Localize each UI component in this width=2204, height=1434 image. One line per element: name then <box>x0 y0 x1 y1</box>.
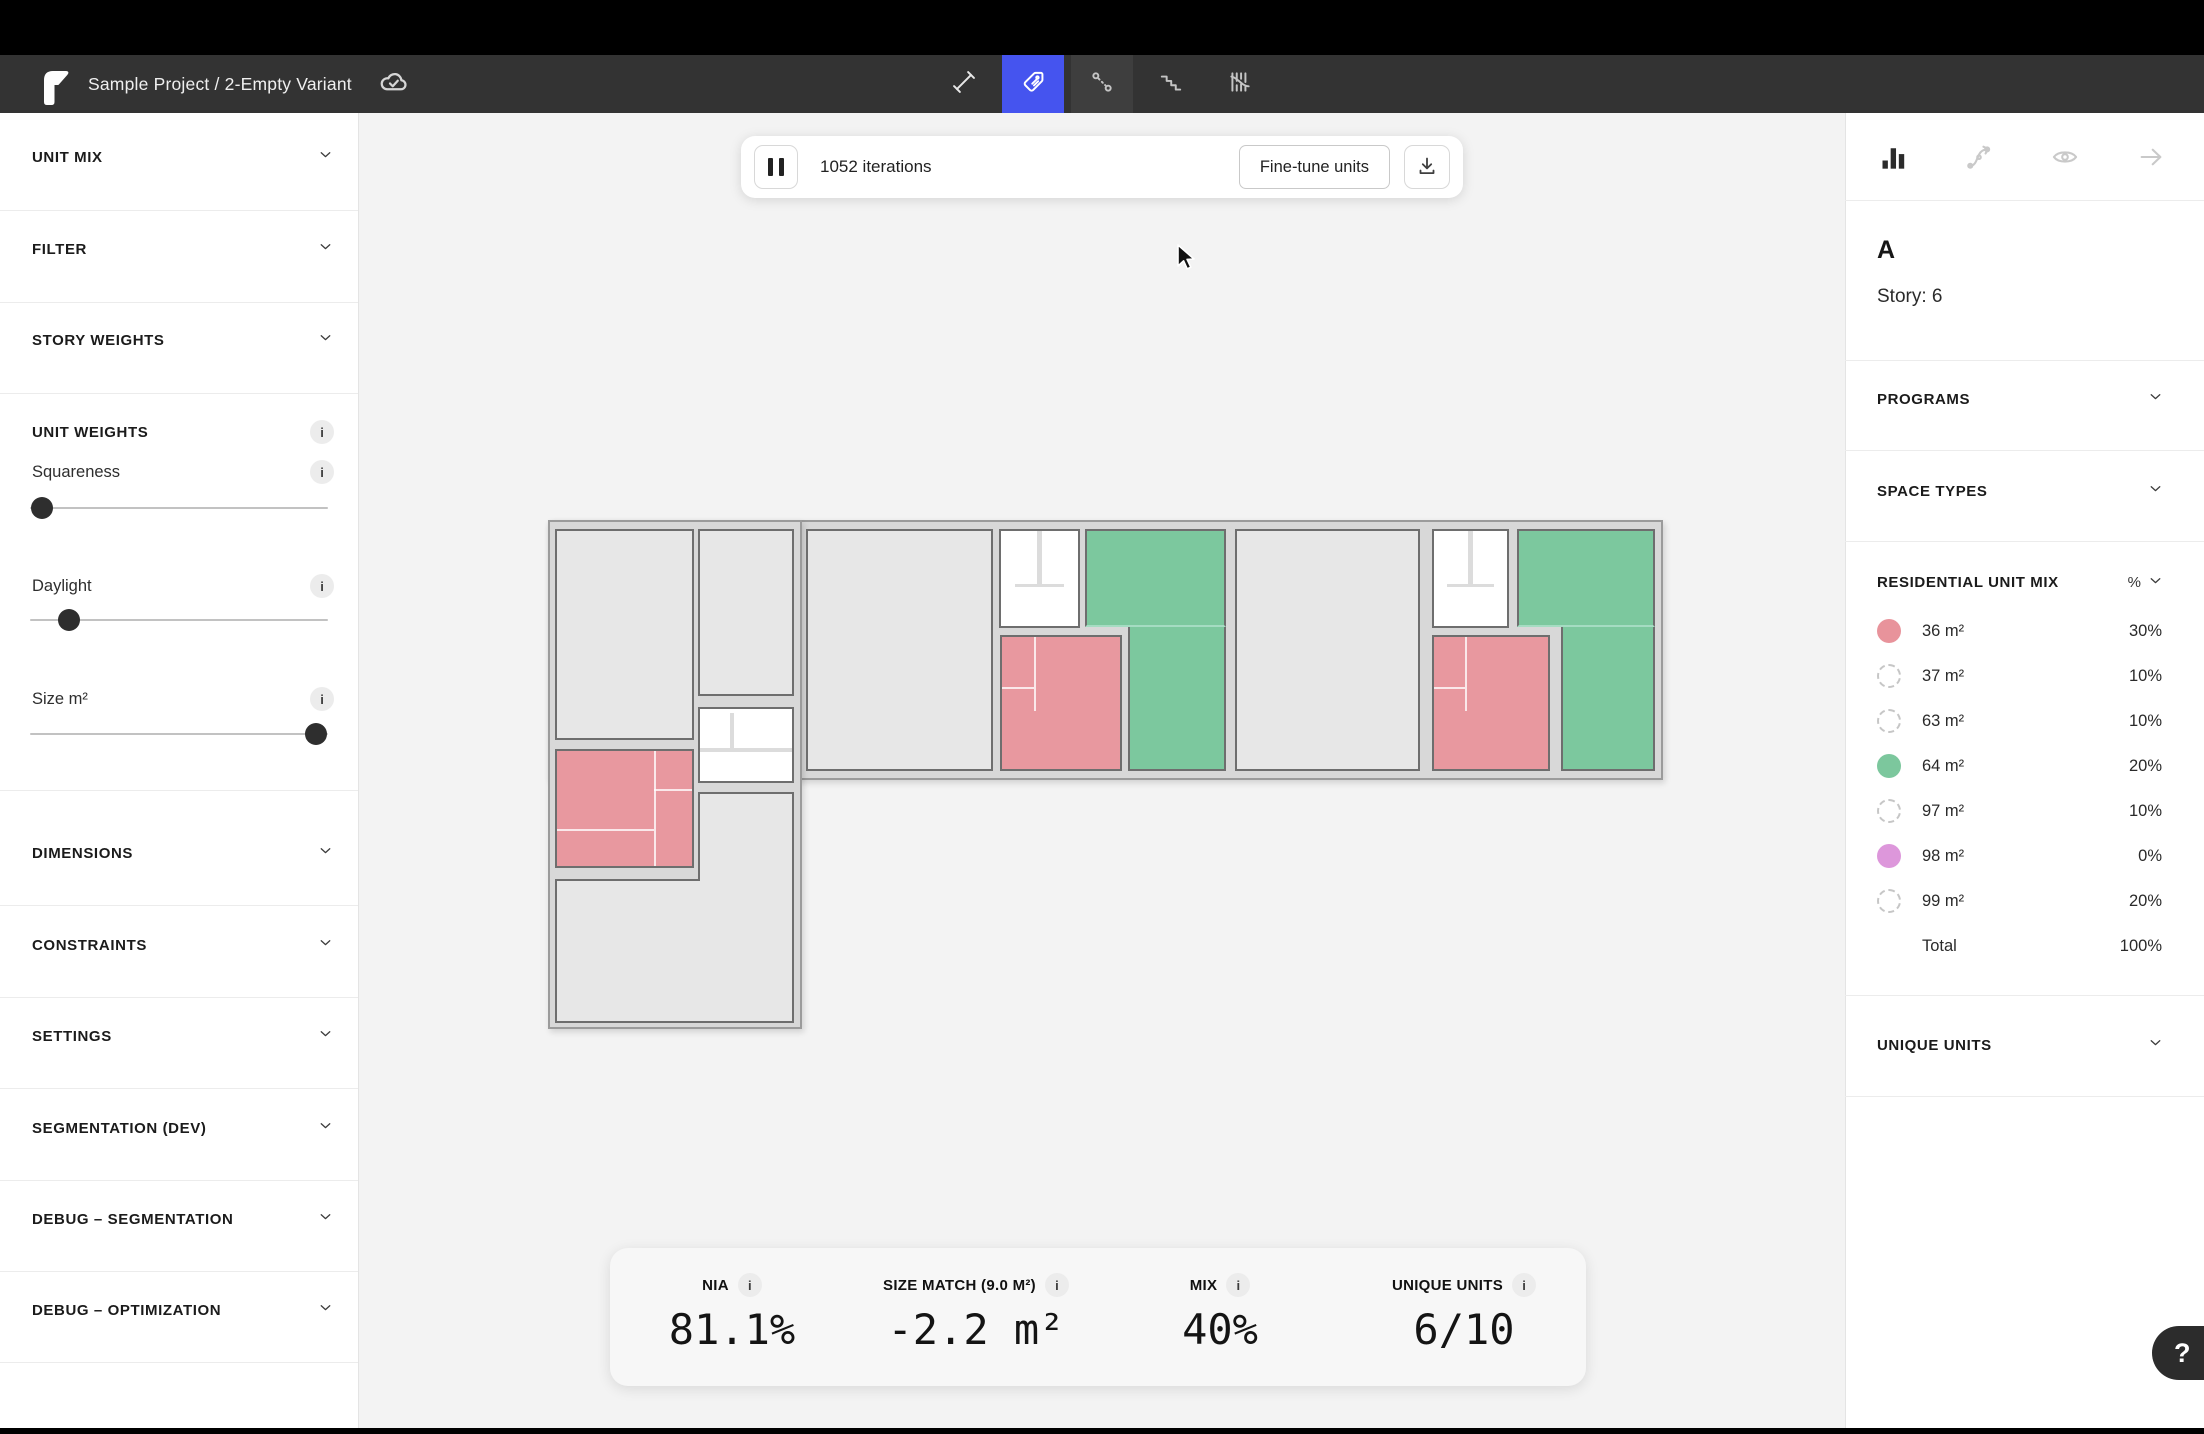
iterations-count: 1052 iterations <box>820 157 932 177</box>
pause-button[interactable] <box>754 145 798 189</box>
panel-divider <box>1845 541 2204 542</box>
section-divider <box>0 1088 358 1089</box>
info-icon[interactable]: i <box>738 1273 762 1297</box>
slider-row-squareness: Squarenessi <box>0 454 358 490</box>
unit-room-gray[interactable] <box>698 792 794 881</box>
unit-pct-value: 10% <box>2129 802 2162 821</box>
adjacency-icon <box>1089 69 1115 100</box>
unit-color-swatch-empty[interactable] <box>1877 709 1901 733</box>
unit-room-green[interactable] <box>1128 627 1226 771</box>
info-icon[interactable]: i <box>1512 1273 1536 1297</box>
unit-pct-value: 10% <box>2129 712 2162 731</box>
stat-value: -2.2 m² <box>887 1305 1064 1354</box>
tool-bar <box>933 55 1271 113</box>
tag-tool-button[interactable] <box>1002 55 1064 113</box>
unit-size-label: 99 m² <box>1922 892 1964 911</box>
chevron-down-icon <box>2147 1034 2164 1056</box>
stat-label: NIA <box>702 1277 729 1294</box>
stair-line <box>1447 584 1494 587</box>
sidebar-section-unit-mix[interactable]: UNIT MIX <box>0 139 358 175</box>
slider-row-size-m-: Size m²i <box>0 681 358 717</box>
stair-core[interactable] <box>999 529 1080 628</box>
chevron-down-icon <box>317 1208 334 1230</box>
stat-unique-units: UNIQUE UNITSi6/10 <box>1342 1248 1586 1386</box>
slider-thumb[interactable] <box>58 609 80 631</box>
unit-color-swatch[interactable] <box>1877 754 1901 778</box>
unit-partition-line <box>654 789 692 791</box>
unit-room-green[interactable] <box>1085 529 1226 627</box>
unit-room-pink[interactable] <box>1000 635 1122 771</box>
panel-divider <box>1845 1096 2204 1097</box>
panel-section-unique-units[interactable]: UNIQUE UNITS <box>1845 1027 2204 1063</box>
unit-color-swatch-empty[interactable] <box>1877 889 1901 913</box>
unit-pct-value: 30% <box>2129 622 2162 641</box>
cloud-sync-icon[interactable] <box>378 67 408 102</box>
chevron-down-icon <box>317 1117 334 1139</box>
info-icon[interactable]: i <box>310 420 334 444</box>
sidebar-section-debug-optimization[interactable]: DEBUG – OPTIMIZATION <box>0 1292 358 1328</box>
total-percent: 100% <box>2120 937 2162 956</box>
chevron-down-icon <box>317 1025 334 1047</box>
finch-logo-icon[interactable] <box>28 60 76 108</box>
measure-icon <box>951 69 977 100</box>
help-button[interactable]: ? <box>2152 1326 2204 1380</box>
slider-label: Size m² <box>32 690 88 709</box>
sidebar-section-settings-label: SETTINGS <box>32 1028 112 1045</box>
tag-icon <box>1020 69 1046 100</box>
sidebar-section-dimensions-label: DIMENSIONS <box>32 845 133 862</box>
info-icon[interactable]: i <box>310 574 334 598</box>
adjacency-tool-button[interactable] <box>1071 55 1133 113</box>
total-label: Total <box>1922 937 1957 956</box>
stair-line <box>1037 531 1042 586</box>
unit-pct-value: 20% <box>2129 757 2162 776</box>
panel-section-label: SPACE TYPES <box>1877 483 1988 500</box>
unit-partition-line <box>1434 687 1465 689</box>
slider-row-daylight: Daylighti <box>0 568 358 604</box>
info-icon[interactable]: i <box>310 460 334 484</box>
unit-mix-percent-header[interactable]: % <box>2128 574 2141 591</box>
sidebar-section-settings[interactable]: SETTINGS <box>0 1018 358 1054</box>
residential-unit-mix-title: RESIDENTIAL UNIT MIX <box>1877 574 2059 591</box>
chevron-down-icon <box>2147 480 2164 502</box>
stat-label: UNIQUE UNITS <box>1392 1277 1503 1294</box>
unit-room-green[interactable] <box>1517 529 1655 627</box>
residential-unit-mix-header[interactable]: RESIDENTIAL UNIT MIX % <box>1845 566 2204 598</box>
sidebar-section-filter[interactable]: FILTER <box>0 231 358 267</box>
sidebar-section-story-weights-label: STORY WEIGHTS <box>32 332 165 349</box>
stat-value: 40% <box>1182 1305 1258 1354</box>
panel-section-label: PROGRAMS <box>1877 391 1970 408</box>
unit-mix-row[interactable]: 63 m²10% <box>1845 705 2204 737</box>
slider-thumb[interactable] <box>31 497 53 519</box>
unit-size-label: 97 m² <box>1922 802 1964 821</box>
info-icon[interactable]: i <box>1226 1273 1250 1297</box>
unit-mix-row[interactable]: 36 m²30% <box>1845 615 2204 647</box>
stat-nia: NIAi81.1% <box>610 1248 854 1386</box>
download-icon <box>1415 154 1439 181</box>
slider-label: Squareness <box>32 463 120 482</box>
panel-icon-row <box>1877 141 2167 173</box>
sidebar-section-unit-weights[interactable]: UNIT WEIGHTSi <box>0 414 358 450</box>
unit-partition-line <box>1002 687 1034 689</box>
stair-line <box>730 713 734 748</box>
unit-partition-line <box>1034 637 1036 711</box>
chevron-down-icon <box>317 329 334 351</box>
stat-mix: MIXi40% <box>1098 1248 1342 1386</box>
left-sidebar: UNIT MIXFILTERSTORY WEIGHTSUNIT WEIGHTSi… <box>0 113 359 1428</box>
chevron-down-icon <box>317 146 334 168</box>
unit-size-label: 64 m² <box>1922 757 1964 776</box>
unit-pct-value: 20% <box>2129 892 2162 911</box>
unit-mix-total-row: Total 100% <box>1845 930 2204 962</box>
unit-size-label: 37 m² <box>1922 667 1964 686</box>
unit-color-swatch-empty[interactable] <box>1877 799 1901 823</box>
panel-divider <box>1845 450 2204 451</box>
eye-icon[interactable] <box>2049 141 2081 173</box>
unit-size-label: 36 m² <box>1922 622 1964 641</box>
sidebar-section-debug-segmentation-label: DEBUG – SEGMENTATION <box>32 1211 233 1228</box>
sidebar-section-filter-label: FILTER <box>32 241 87 258</box>
unit-color-swatch[interactable] <box>1877 844 1901 868</box>
unit-partition-line <box>654 751 656 866</box>
stat-value: 6/10 <box>1413 1305 1514 1354</box>
measure-tool-button[interactable] <box>933 55 995 113</box>
chevron-down-icon <box>2147 572 2164 593</box>
mouse-cursor <box>1171 241 1201 278</box>
unit-room-green[interactable] <box>1561 627 1655 771</box>
os-bottom-strip <box>0 1428 2204 1434</box>
sidebar-section-dimensions[interactable]: DIMENSIONS <box>0 835 358 871</box>
stat-size-match-9-0-m-: SIZE MATCH (9.0 M²)i-2.2 m² <box>854 1248 1098 1386</box>
section-divider <box>0 790 358 791</box>
unit-room-gray[interactable] <box>698 529 794 696</box>
story-label: Story: 6 <box>1877 286 1942 308</box>
panel-divider <box>1845 995 2204 996</box>
unit-color-swatch-empty[interactable] <box>1877 664 1901 688</box>
section-divider <box>0 302 358 303</box>
slider-track[interactable] <box>30 733 328 735</box>
chevron-down-icon <box>317 842 334 864</box>
stair-line <box>1015 584 1064 587</box>
project-breadcrumb[interactable]: Sample Project / 2-Empty Variant <box>88 74 352 95</box>
hatch-tool-button[interactable] <box>1209 55 1271 113</box>
sidebar-section-segmentation-dev-[interactable]: SEGMENTATION (DEV) <box>0 1110 358 1146</box>
metrics-panel: NIAi81.1%SIZE MATCH (9.0 M²)i-2.2 m²MIXi… <box>610 1248 1586 1386</box>
sidebar-section-constraints-label: CONSTRAINTS <box>32 937 147 954</box>
unit-room-gray[interactable] <box>806 529 993 771</box>
stat-value: 81.1% <box>669 1305 795 1354</box>
unit-pct-value: 0% <box>2138 847 2162 866</box>
sidebar-section-unit-mix-label: UNIT MIX <box>32 149 103 166</box>
unit-room-gray[interactable] <box>555 529 694 740</box>
unit-mix-row[interactable]: 99 m²20% <box>1845 885 2204 917</box>
sidebar-section-segmentation-dev--label: SEGMENTATION (DEV) <box>32 1120 206 1137</box>
panel-section-programs[interactable]: PROGRAMS <box>1845 381 2204 417</box>
stairs-icon <box>1158 69 1184 100</box>
unit-pct-value: 10% <box>2129 667 2162 686</box>
unit-room-gray[interactable] <box>555 879 794 1023</box>
optimization-pill: 1052 iterations Fine-tune units <box>741 136 1463 198</box>
panel-divider <box>1845 200 2204 201</box>
stair-core[interactable] <box>1432 529 1509 628</box>
slider-thumb[interactable] <box>305 723 327 745</box>
section-divider <box>0 210 358 211</box>
stat-label: SIZE MATCH (9.0 M²) <box>883 1277 1036 1294</box>
slider-track[interactable] <box>30 507 328 509</box>
hatch-icon <box>1227 69 1253 100</box>
variant-label: A <box>1877 236 1895 265</box>
stat-label: MIX <box>1190 1277 1218 1294</box>
section-divider <box>0 1271 358 1272</box>
chevron-down-icon <box>317 1299 334 1321</box>
flow-icon[interactable] <box>1963 141 1995 173</box>
app-screen: Sample Project / 2-Empty Variant UNIT MI… <box>0 0 2204 1434</box>
unit-mix-row[interactable]: 37 m²10% <box>1845 660 2204 692</box>
floorplan-canvas[interactable] <box>548 520 1668 1032</box>
unit-room-pink[interactable] <box>555 749 694 868</box>
stair-line <box>700 748 792 752</box>
chevron-down-icon <box>317 934 334 956</box>
sidebar-section-debug-segmentation[interactable]: DEBUG – SEGMENTATION <box>0 1201 358 1237</box>
sidebar-section-story-weights[interactable]: STORY WEIGHTS <box>0 322 358 358</box>
section-divider <box>0 393 358 394</box>
arrow-right-icon[interactable] <box>2135 141 2167 173</box>
info-icon[interactable]: i <box>1045 1273 1069 1297</box>
unit-size-label: 98 m² <box>1922 847 1964 866</box>
unit-size-label: 63 m² <box>1922 712 1964 731</box>
unique-units-label: UNIQUE UNITS <box>1877 1037 1992 1054</box>
stair-line <box>1468 531 1473 586</box>
download-button[interactable] <box>1404 145 1450 189</box>
sidebar-section-constraints[interactable]: CONSTRAINTS <box>0 927 358 963</box>
chevron-down-icon <box>317 238 334 260</box>
unit-room-gray[interactable] <box>1235 529 1420 771</box>
fine-tune-units-button[interactable]: Fine-tune units <box>1239 145 1390 189</box>
unit-mix-row[interactable]: 64 m²20% <box>1845 750 2204 782</box>
slider-label: Daylight <box>32 577 92 596</box>
wall-segment <box>555 879 700 881</box>
section-divider <box>0 1180 358 1181</box>
unit-mix-row[interactable]: 98 m²0% <box>1845 840 2204 872</box>
section-divider <box>0 905 358 906</box>
unit-color-swatch[interactable] <box>1877 619 1901 643</box>
chevron-down-icon <box>2147 388 2164 410</box>
unit-room-pink[interactable] <box>1432 635 1550 771</box>
sidebar-section-debug-optimization-label: DEBUG – OPTIMIZATION <box>32 1302 221 1319</box>
unit-partition-line <box>557 829 654 831</box>
os-top-strip <box>0 0 2204 55</box>
panel-divider <box>1845 360 2204 361</box>
unit-mix-row[interactable]: 97 m²10% <box>1845 795 2204 827</box>
chart-icon[interactable] <box>1877 141 1909 173</box>
section-divider <box>0 1362 358 1363</box>
unit-partition-line <box>1465 637 1467 711</box>
panel-section-space-types[interactable]: SPACE TYPES <box>1845 473 2204 509</box>
stair-core[interactable] <box>698 707 794 783</box>
unit-weights-label: UNIT WEIGHTS <box>32 424 148 441</box>
stairs-tool-button[interactable] <box>1140 55 1202 113</box>
section-divider <box>0 997 358 998</box>
info-icon[interactable]: i <box>310 687 334 711</box>
